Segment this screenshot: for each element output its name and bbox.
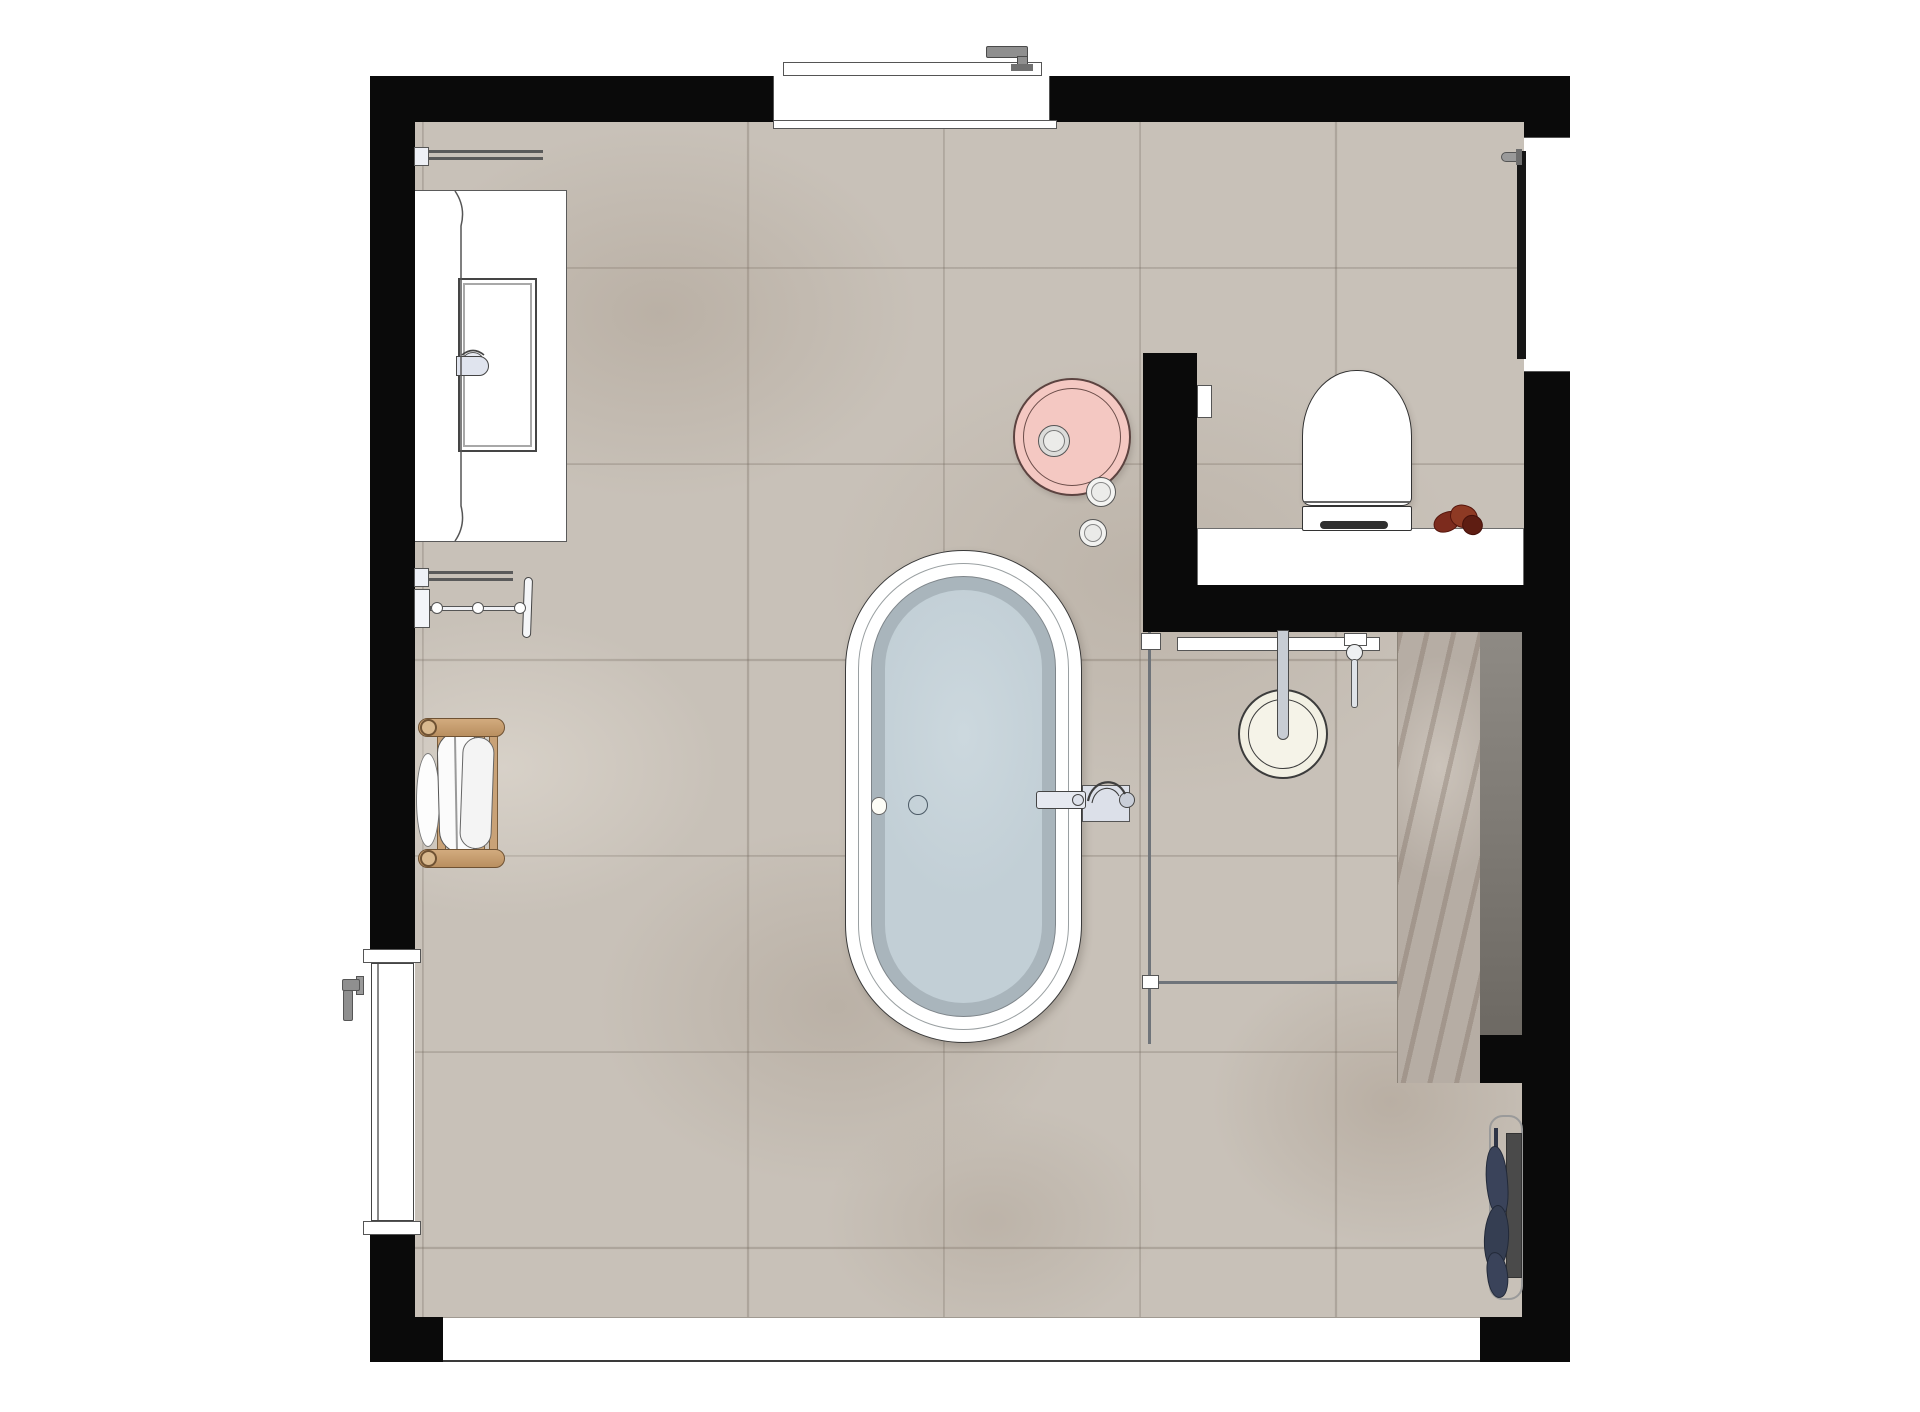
wall-north-right bbox=[1050, 76, 1570, 122]
toilet-ledge bbox=[1197, 528, 1524, 586]
toilet-seat-line bbox=[1304, 501, 1410, 503]
pink-stool bbox=[1013, 378, 1131, 496]
bathroom-floor-plan bbox=[0, 0, 1920, 1412]
wall-chunk-east bbox=[1480, 1035, 1570, 1083]
shower-back-wall-strip bbox=[1397, 632, 1480, 1083]
wall-west-upper bbox=[370, 122, 415, 952]
door-handle-stem bbox=[343, 990, 353, 1021]
towel-arm-knob-2 bbox=[472, 602, 484, 614]
floor-jar-1-inner bbox=[1091, 482, 1111, 502]
wood-rack-ring-top bbox=[420, 719, 437, 736]
towel-rail-lower-bar bbox=[429, 571, 513, 574]
bathtub-water bbox=[885, 590, 1042, 1003]
window-east-handle-base bbox=[1516, 149, 1522, 165]
south-wall-band bbox=[443, 1317, 1481, 1362]
towel-arm-plate bbox=[414, 589, 430, 628]
window-east-sash bbox=[1517, 151, 1526, 359]
wall-corner-se bbox=[1480, 1317, 1570, 1362]
bathtub-drain-icon bbox=[908, 795, 928, 815]
shower-glass-bracket-bottom bbox=[1142, 975, 1159, 989]
towel-arm-knob-3 bbox=[514, 602, 526, 614]
wall-west-lower bbox=[370, 1233, 415, 1317]
window-east bbox=[1524, 137, 1570, 372]
window-north-outer-sill bbox=[783, 62, 1042, 76]
wall-east-upper bbox=[1524, 122, 1570, 137]
window-north bbox=[773, 76, 1050, 122]
towel-arm-knob-1 bbox=[431, 602, 443, 614]
shower-floor-track bbox=[1151, 981, 1397, 984]
window-north-inner-sill bbox=[773, 120, 1057, 129]
rain-shower-arm bbox=[1277, 630, 1289, 740]
wood-rack-ring-bottom bbox=[420, 850, 437, 867]
wall-east-lower bbox=[1522, 632, 1570, 1317]
toilet-flush-slot bbox=[1320, 521, 1388, 529]
partition-wall-horizontal bbox=[1143, 585, 1570, 632]
wall-corner-sw bbox=[370, 1317, 443, 1362]
window-north-handle-base bbox=[1011, 64, 1033, 71]
hand-shower-rod bbox=[1351, 659, 1358, 708]
shower-niche-strip bbox=[1480, 632, 1522, 1035]
tub-faucet-knob bbox=[1119, 792, 1135, 808]
entry-door-jamb-top bbox=[363, 949, 421, 963]
towel-rail-upper-bracket bbox=[414, 147, 429, 166]
sink-faucet-icon bbox=[456, 356, 489, 376]
wall-north-left bbox=[370, 76, 773, 122]
toilet-bowl bbox=[1302, 370, 1412, 506]
stool-cup-inner bbox=[1043, 430, 1065, 452]
shower-glass-bracket-top bbox=[1141, 633, 1161, 650]
towel-rail-upper-bar bbox=[429, 150, 543, 153]
towel-rail-upper-bar2 bbox=[429, 157, 543, 160]
tub-faucet-joint bbox=[1072, 794, 1084, 806]
bathtub-overflow-icon bbox=[871, 797, 887, 815]
floor-jar-2-inner bbox=[1084, 524, 1102, 542]
white-towel-layer2 bbox=[459, 736, 495, 849]
towel-radiator-panel bbox=[1506, 1133, 1522, 1278]
flush-plate bbox=[1197, 385, 1212, 418]
towel-rail-lower-bar2 bbox=[429, 578, 513, 581]
towel-rail-lower-bracket bbox=[414, 568, 429, 587]
entry-door-jamb-bottom bbox=[363, 1221, 421, 1235]
entry-door-leaf-edge bbox=[377, 964, 379, 1220]
